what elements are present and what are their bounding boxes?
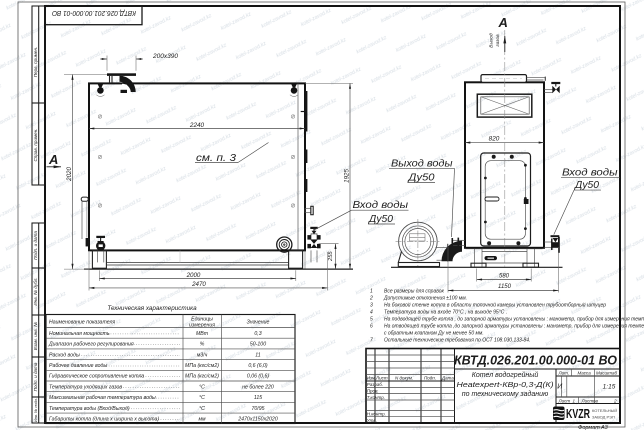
svg-text:255: 255 — [328, 251, 334, 262]
svg-text:Расход воды: Расход воды — [49, 352, 80, 358]
svg-text:KVZR: KVZR — [566, 407, 590, 421]
svg-text:200х390: 200х390 — [152, 53, 178, 60]
svg-text:Температура уходящих газов: Температура уходящих газов — [49, 384, 122, 390]
svg-text:6: 6 — [370, 324, 373, 330]
svg-text:Инв. № дубл.: Инв. № дубл. — [33, 277, 38, 305]
svg-text:1:15: 1:15 — [603, 384, 616, 391]
svg-text:Диапазон рабочего регулировани: Диапазон рабочего регулирования — [48, 342, 134, 348]
svg-text:Изм.: Изм. — [367, 375, 377, 380]
svg-text:Габариты котла (длина х ширина: Габариты котла (длина х ширина х высота) — [49, 417, 159, 423]
svg-text:Вход воды: Вход воды — [353, 200, 409, 211]
svg-text:КВТД.026.201.00.000-01 ВО: КВТД.026.201.00.000-01 ВО — [454, 354, 617, 368]
svg-text:Ду50: Ду50 — [574, 180, 599, 191]
svg-text:Н.контр.: Н.контр. — [367, 412, 386, 417]
svg-text:газов: газов — [496, 34, 501, 47]
svg-text:с обратным клапаном Ду не мен: с обратным клапаном Ду не менее 50 мм. — [384, 331, 484, 337]
svg-text:Вход воды: Вход воды — [562, 167, 618, 178]
svg-text:Лит.: Лит. — [558, 371, 570, 376]
svg-text:м3/ч: м3/ч — [197, 352, 208, 358]
svg-text:Разраб.: Разраб. — [367, 382, 383, 387]
svg-text:Справ. примен.: Справ. примен. — [33, 128, 38, 161]
svg-text:2470: 2470 — [191, 281, 206, 288]
svg-text:Номинальная мощность: Номинальная мощность — [49, 331, 110, 337]
svg-text:°С: °С — [199, 395, 205, 401]
svg-text:Подп.: Подп. — [424, 375, 436, 380]
svg-text:мм: мм — [198, 417, 206, 423]
svg-text:Гидравлическое сопротивление к: Гидравлическое сопротивление котла — [49, 374, 144, 380]
svg-text:2000: 2000 — [186, 272, 201, 279]
svg-text:2020: 2020 — [66, 167, 73, 182]
svg-text:На боковой стенке котла в обла: На боковой стенке котла в области топочн… — [384, 302, 606, 309]
svg-text:0,6 (6,0): 0,6 (6,0) — [248, 363, 268, 369]
svg-text:Лист: Лист — [558, 398, 571, 403]
svg-text:КОТЕЛЬНЫЙ: КОТЕЛЬНЫЙ — [592, 408, 617, 413]
svg-text:Подп. и дата: Подп. и дата — [33, 231, 38, 260]
svg-text:ЗАВОД РЭП: ЗАВОД РЭП — [592, 415, 615, 420]
svg-text:Техническая характеристика: Техническая характеристика — [107, 305, 197, 312]
svg-text:МПа (кгс/см2): МПа (кгс/см2) — [185, 374, 219, 380]
svg-text:11: 11 — [255, 352, 260, 358]
svg-text:0,06 (0,6): 0,06 (0,6) — [247, 374, 269, 380]
svg-text:°С: °С — [199, 406, 205, 412]
svg-text:Пров.: Пров. — [367, 388, 379, 393]
svg-text:Температура воды на входе 70°: Температура воды на входе 70°С , на выхо… — [384, 310, 507, 316]
svg-text:Формат: Формат — [578, 425, 600, 430]
svg-text:Все размеры для справок: Все размеры для справок — [384, 289, 445, 295]
svg-text:580: 580 — [499, 273, 510, 279]
svg-text:°С: °С — [199, 384, 205, 390]
svg-text:Инв. № подл.: Инв. № подл. — [33, 398, 38, 422]
svg-text:по техническому заданию: по техническому заданию — [462, 390, 549, 398]
svg-text:3: 3 — [370, 303, 373, 309]
svg-text:На подводящей трубе котла ,: На подводящей трубе котла , до запорной … — [384, 316, 644, 323]
svg-text:2: 2 — [369, 296, 373, 302]
svg-text:не более 220: не более 220 — [242, 384, 274, 390]
svg-text:2240: 2240 — [189, 122, 205, 129]
svg-text:МВт: МВт — [196, 331, 209, 337]
svg-text:Значение: Значение — [247, 320, 270, 326]
svg-text:Т.контр.: Т.контр. — [367, 395, 385, 400]
svg-text:Листов: Листов — [581, 398, 599, 403]
svg-text:Перв. примен.: Перв. примен. — [33, 47, 38, 78]
svg-text:Масса: Масса — [578, 371, 592, 376]
svg-text:На отводящей трубе котла ,до з: На отводящей трубе котла ,до запорной ар… — [384, 323, 644, 330]
svg-text:Температура воды (Вход/Выход): Температура воды (Вход/Выход) — [49, 406, 130, 412]
svg-text:Дата: Дата — [441, 375, 454, 380]
svg-text:Ду50: Ду50 — [368, 214, 393, 225]
svg-text:А3: А3 — [600, 425, 609, 430]
svg-text:7: 7 — [370, 338, 373, 344]
svg-text:Лист: Лист — [375, 375, 388, 380]
svg-text:МПа (кгс/см2): МПа (кгс/см2) — [185, 363, 219, 369]
svg-text:Максимальная рабочая температу: Максимальная рабочая температура воды — [49, 395, 156, 401]
svg-text:N докум.: N докум. — [395, 375, 413, 380]
svg-text:2: 2 — [613, 398, 617, 403]
svg-text:Выход: Выход — [489, 33, 495, 48]
svg-text:Допустимые отклонения ±100 мм: Допустимые отклонения ±100 мм. — [383, 296, 467, 302]
svg-text:Наименование показателя: Наименование показателя — [49, 320, 115, 326]
svg-text:70/95: 70/95 — [252, 406, 265, 412]
svg-text:Масштаб: Масштаб — [596, 371, 617, 376]
svg-text:1: 1 — [370, 289, 373, 295]
svg-text:А: А — [498, 15, 508, 30]
svg-text:Выход воды: Выход воды — [391, 158, 453, 169]
svg-text:Ду50: Ду50 — [407, 172, 434, 183]
svg-text:А: А — [48, 152, 58, 167]
svg-text:2470х1150х2020: 2470х1150х2020 — [237, 417, 278, 423]
svg-text:4: 4 — [370, 310, 373, 316]
svg-text:Heatexpert-КВр-0,3-Д(К): Heatexpert-КВр-0,3-Д(К) — [457, 382, 554, 389]
svg-text:измерения: измерения — [189, 322, 215, 328]
svg-text:КВТД.026.201.00.000-01 ВО: КВТД.026.201.00.000-01 ВО — [52, 9, 136, 18]
svg-text:820: 820 — [489, 136, 500, 143]
svg-text:%: % — [200, 342, 205, 348]
svg-text:0,3: 0,3 — [254, 331, 261, 337]
svg-text:1925: 1925 — [344, 169, 351, 183]
svg-text:1150: 1150 — [498, 284, 512, 290]
svg-text:Взам. инв. №: Взам. инв. № — [33, 322, 38, 350]
svg-text:Подп. и дата: Подп. и дата — [33, 362, 38, 391]
svg-text:Остальные технические требован: Остальные технические требования по ОСТ … — [384, 338, 530, 344]
svg-text:Утв.: Утв. — [367, 418, 377, 423]
svg-text:Рабочее давление воды: Рабочее давление воды — [49, 363, 107, 369]
svg-text:50-100: 50-100 — [250, 342, 266, 348]
svg-text:Котел водогрейный: Котел водогрейный — [472, 371, 539, 379]
svg-text:5: 5 — [370, 317, 373, 323]
svg-text:115: 115 — [254, 395, 262, 401]
